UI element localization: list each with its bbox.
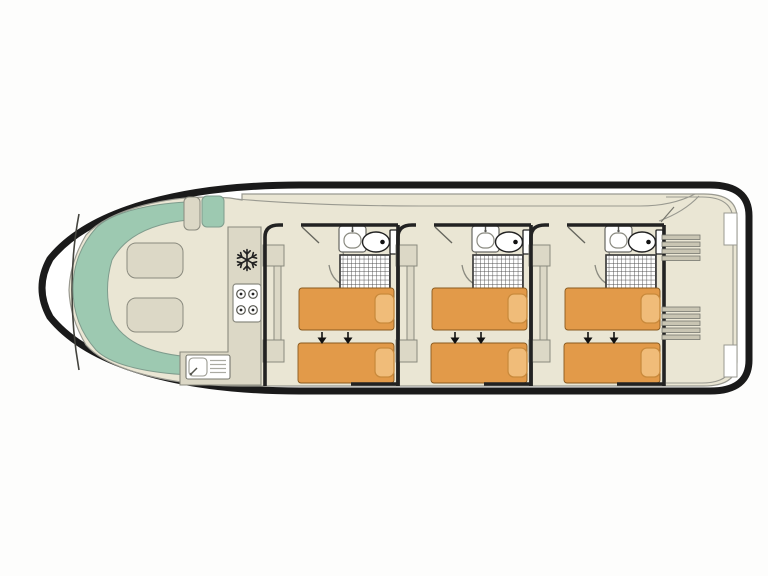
boat-floor-plan: [0, 0, 768, 576]
sofa-cushion: [127, 243, 183, 278]
helm-seat: [184, 197, 200, 230]
deck-plan-canvas: [0, 0, 768, 576]
steps-ladder-bottom: [662, 307, 700, 340]
stern-notch: [724, 345, 737, 377]
helm-seat: [202, 196, 224, 227]
hob-icon: [233, 284, 261, 322]
sofa-cushion: [127, 298, 183, 332]
sink-icon: [186, 355, 230, 379]
stern-notch: [724, 213, 737, 245]
